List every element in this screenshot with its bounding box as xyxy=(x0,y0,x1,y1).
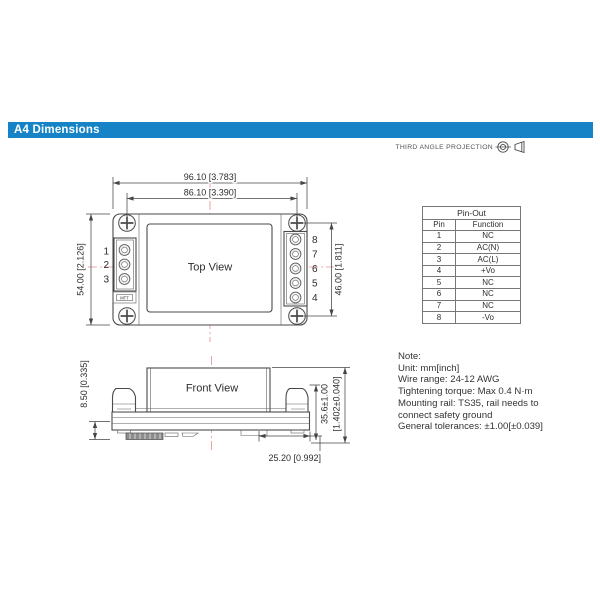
pin-label-4: 4 xyxy=(312,293,318,304)
dim-text-overall-height: 54.00 [2.126] xyxy=(76,243,86,296)
dim-text-depth: 25.20 [0.992] xyxy=(268,453,321,463)
pin-label-8: 8 xyxy=(312,235,318,246)
dim-text-total-height-inch: [1.402±0.040] xyxy=(332,377,342,432)
pin-label-3: 3 xyxy=(103,275,109,286)
dim-text-mounting-height: 46.00 [1.811] xyxy=(334,244,344,296)
function-cell: NC xyxy=(456,300,521,312)
pin-label-6: 6 xyxy=(312,264,318,275)
top-view: MTT 1 2 3 8 7 6 5 4 Top View xyxy=(76,172,344,342)
pinout-row: 4+Vo xyxy=(423,265,521,277)
function-cell: NC xyxy=(456,277,521,289)
dim-text-overall-width: 96.10 [3.783] xyxy=(184,172,237,182)
pin-cell: 7 xyxy=(423,300,456,312)
function-cell: -Vo xyxy=(456,312,521,324)
pin-cell: 6 xyxy=(423,289,456,301)
dim-text-clip-height: 8.50 [0.335] xyxy=(79,360,89,408)
front-view-label: Front View xyxy=(186,383,238,395)
note-line: Mounting rail: TS35, rail needs to xyxy=(398,398,588,410)
front-view: Front View 8.50 [0.335] 35.6±1.00 [1.402… xyxy=(79,356,350,463)
function-cell: +Vo xyxy=(456,265,521,277)
pin-label-1: 1 xyxy=(103,247,109,258)
pin-cell: 1 xyxy=(423,231,456,243)
pinout-table: Pin-Out Pin Function 1NC 2AC(N) 3AC(L) 4… xyxy=(422,206,521,324)
note-line: Wire range: 24-12 AWG xyxy=(398,374,588,386)
dim-text-mounting-width: 86.10 [3.390] xyxy=(184,188,237,198)
function-cell: AC(L) xyxy=(456,254,521,266)
datasheet-page: A4 Dimensions THIRD ANGLE PROJECTION xyxy=(0,0,600,600)
pin-label-2: 2 xyxy=(103,260,109,271)
pin-cell: 5 xyxy=(423,277,456,289)
top-view-label: Top View xyxy=(188,262,232,274)
din-clip-lever xyxy=(182,433,198,437)
note-line: Unit: mm[inch] xyxy=(398,363,588,375)
pinout-row: 1NC xyxy=(423,231,521,243)
pin-cell: 3 xyxy=(423,254,456,266)
notes-block: Note: Unit: mm[inch] Wire range: 24-12 A… xyxy=(398,351,588,433)
pinout-header-row: Pin Function xyxy=(423,219,521,231)
front-view-base xyxy=(112,412,310,430)
pinout-col-pin: Pin xyxy=(423,219,456,231)
pinout-row: 7NC xyxy=(423,300,521,312)
note-line: General tolerances: ±1.00[±0.039] xyxy=(398,421,588,433)
pinout-row: 8-Vo xyxy=(423,312,521,324)
pinout-row: 2AC(N) xyxy=(423,242,521,254)
note-line: Note: xyxy=(398,351,588,363)
pin-cell: 2 xyxy=(423,242,456,254)
note-line: connect safety ground xyxy=(398,410,588,422)
right-terminal-cover xyxy=(286,389,308,413)
brand-mark-text: MTT xyxy=(120,295,129,300)
function-cell: NC xyxy=(456,231,521,243)
din-rail-step xyxy=(241,430,267,436)
pin-cell: 4 xyxy=(423,265,456,277)
dim-ext-46 xyxy=(304,223,337,316)
dim-ext-850 xyxy=(89,422,110,440)
din-clip-ribbed xyxy=(126,433,163,440)
dim-text-total-height-mm: 35.6±1.00 xyxy=(320,384,330,424)
pin-label-7: 7 xyxy=(312,250,318,261)
function-cell: NC xyxy=(456,289,521,301)
pinout-row: 5NC xyxy=(423,277,521,289)
din-clip-tab xyxy=(165,433,178,437)
pinout-title: Pin-Out xyxy=(423,207,521,220)
pinout-row: 3AC(L) xyxy=(423,254,521,266)
left-terminal-cover xyxy=(113,389,136,413)
pin-label-5: 5 xyxy=(312,279,318,290)
pin-cell: 8 xyxy=(423,312,456,324)
function-cell: AC(N) xyxy=(456,242,521,254)
pinout-title-row: Pin-Out xyxy=(423,207,521,220)
pinout-row: 6NC xyxy=(423,289,521,301)
note-line: Tightening torque: Max 0.4 N·m xyxy=(398,386,588,398)
pinout-col-function: Function xyxy=(456,219,521,231)
